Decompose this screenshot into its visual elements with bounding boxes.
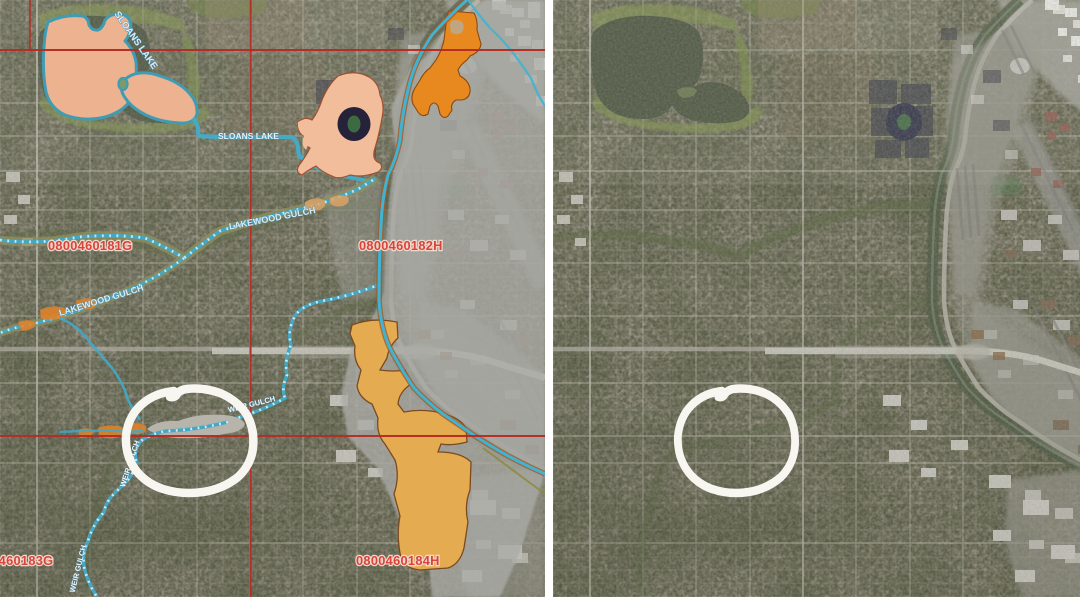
svg-text:SLOANS LAKE: SLOANS LAKE (218, 131, 279, 141)
svg-text:0800460182H: 0800460182H (359, 238, 443, 253)
svg-text:0800460181G: 0800460181G (48, 238, 132, 253)
svg-text:0800460183G: 0800460183G (0, 553, 53, 568)
svg-text:0800460184H: 0800460184H (356, 553, 440, 568)
